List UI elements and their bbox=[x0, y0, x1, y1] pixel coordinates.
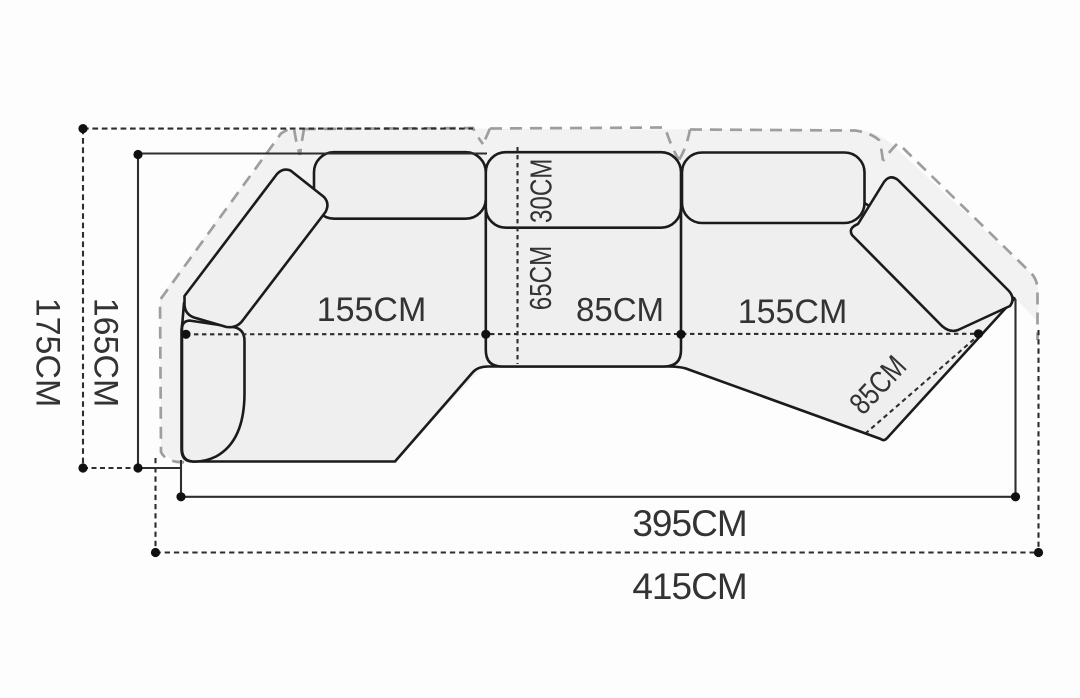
svg-text:30CM: 30CM bbox=[524, 159, 559, 223]
svg-text:155CM: 155CM bbox=[317, 291, 427, 329]
svg-text:175CM: 175CM bbox=[29, 298, 67, 408]
svg-text:415CM: 415CM bbox=[632, 566, 746, 607]
svg-text:395CM: 395CM bbox=[632, 503, 746, 544]
svg-text:65CM: 65CM bbox=[523, 246, 558, 310]
svg-text:165CM: 165CM bbox=[87, 298, 125, 408]
svg-text:155CM: 155CM bbox=[738, 293, 848, 331]
svg-text:85CM: 85CM bbox=[576, 291, 664, 328]
